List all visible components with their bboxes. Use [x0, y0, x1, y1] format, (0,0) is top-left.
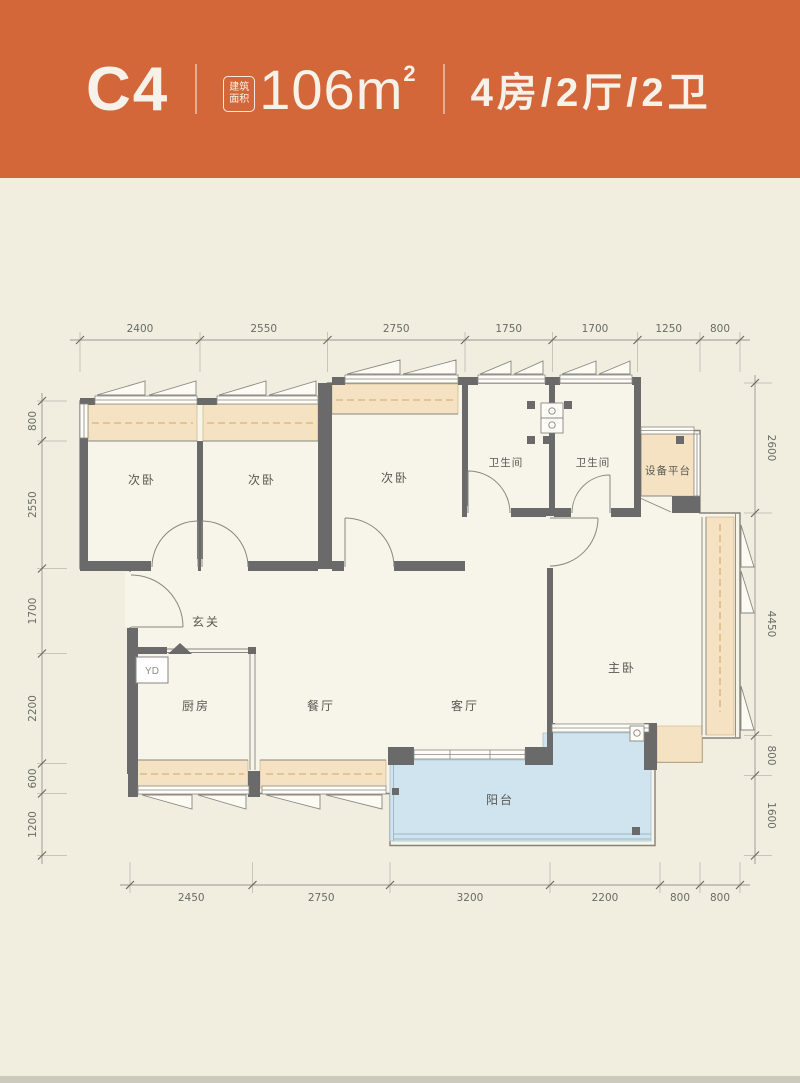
dim-bottom-5: 800: [670, 892, 690, 904]
dim-right-4: 1600: [765, 802, 777, 829]
label-yd: YD: [145, 666, 159, 677]
label-master: 主卧: [608, 661, 636, 675]
dim-bottom-3: 3200: [457, 892, 484, 904]
floor-plan-svg: 2400 2550 2750 1750 1700 1250 800 2450 2…: [0, 0, 800, 1083]
label-foyer: 玄关: [192, 614, 220, 629]
label-bedroom-c: 次卧: [381, 471, 409, 485]
label-bedroom-a: 次卧: [128, 473, 156, 487]
dim-top-2: 2550: [250, 323, 277, 335]
dim-top-7: 800: [710, 323, 730, 335]
bay-master-corner: [657, 726, 702, 762]
dim-left-5: 600: [27, 768, 39, 788]
dim-right-3: 800: [765, 745, 777, 765]
dim-top-5: 1700: [582, 323, 609, 335]
label-bath-a: 卫生间: [489, 456, 524, 469]
page-bottom-edge: [0, 1076, 800, 1083]
dim-left-3: 1700: [27, 598, 39, 625]
label-bath-b: 卫生间: [576, 456, 611, 469]
label-bedroom-b: 次卧: [248, 473, 276, 487]
label-dining: 餐厅: [307, 698, 335, 713]
drain-box: [630, 726, 644, 741]
dim-right-2: 4450: [765, 611, 777, 638]
dim-bottom-6: 800: [710, 892, 730, 904]
label-kitchen: 厨房: [182, 698, 210, 713]
dim-left-2: 2550: [27, 491, 39, 518]
dim-right-1: 2600: [765, 435, 777, 462]
floorplan-page: C4 建筑 面积 106m2 4房/2厅/2卫: [0, 0, 800, 1083]
bay-bedroom-c: [332, 384, 458, 414]
dim-bottom-2: 2750: [308, 892, 335, 904]
label-living: 客厅: [451, 698, 479, 713]
dim-top-6: 1250: [655, 323, 682, 335]
dim-top-4: 1750: [495, 323, 522, 335]
dim-bottom-1: 2450: [178, 892, 205, 904]
dim-left-1: 800: [27, 411, 39, 431]
label-equipment: 设备平台: [645, 464, 691, 477]
dim-left-6: 1200: [27, 811, 39, 838]
label-balcony: 阳台: [486, 792, 514, 807]
dim-bottom-4: 2200: [592, 892, 619, 904]
dim-left-4: 2200: [27, 695, 39, 722]
dim-top-3: 2750: [383, 323, 410, 335]
dim-top-1: 2400: [127, 323, 154, 335]
